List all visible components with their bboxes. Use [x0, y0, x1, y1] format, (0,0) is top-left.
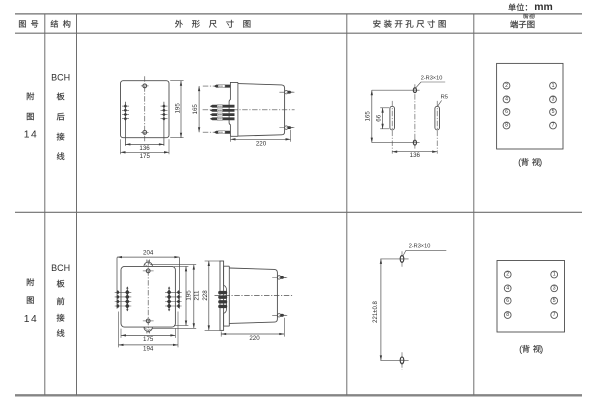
svg-text:165: 165 [192, 104, 199, 115]
svg-text:R5: R5 [441, 95, 448, 101]
svg-text:7: 7 [552, 123, 555, 129]
svg-text:(: ( [519, 344, 522, 354]
svg-text:4: 4 [505, 97, 508, 103]
svg-text:221±0.8: 221±0.8 [373, 301, 379, 323]
svg-text:194: 194 [143, 345, 154, 352]
svg-text:1: 1 [552, 83, 555, 89]
svg-text:2: 2 [505, 83, 508, 89]
svg-text:220: 220 [256, 140, 267, 147]
svg-text:2-R3×10: 2-R3×10 [421, 76, 443, 82]
svg-text:195: 195 [175, 103, 182, 114]
svg-text:BCH: BCH [51, 263, 70, 273]
svg-text:mm: mm [534, 2, 552, 13]
svg-text:175: 175 [143, 336, 154, 343]
svg-text:165: 165 [365, 111, 372, 122]
svg-text:8: 8 [506, 312, 509, 318]
svg-text:220: 220 [249, 335, 260, 342]
svg-text:BCH: BCH [51, 72, 70, 82]
svg-text:228: 228 [202, 290, 209, 301]
svg-text:6: 6 [506, 298, 509, 304]
svg-text:66: 66 [375, 114, 382, 121]
svg-text:): ) [540, 344, 543, 354]
svg-text:5: 5 [553, 298, 556, 304]
svg-text:175: 175 [140, 153, 151, 160]
svg-text:3: 3 [552, 97, 555, 103]
svg-text:195: 195 [186, 290, 193, 301]
svg-text:8: 8 [505, 123, 508, 129]
svg-text:6: 6 [505, 109, 508, 115]
svg-text:2: 2 [506, 272, 509, 278]
svg-text:4: 4 [506, 286, 509, 292]
svg-text:(: ( [518, 157, 521, 167]
svg-text:14: 14 [24, 129, 37, 140]
svg-text:136: 136 [139, 145, 150, 152]
svg-text:136: 136 [410, 152, 421, 159]
svg-text:211: 211 [193, 290, 200, 300]
svg-text:): ) [533, 14, 535, 20]
svg-text:204: 204 [143, 250, 154, 257]
svg-text:5: 5 [552, 109, 555, 115]
svg-text:1: 1 [553, 272, 556, 278]
svg-text:2-R3×10: 2-R3×10 [409, 243, 431, 249]
svg-text:14: 14 [24, 314, 37, 325]
svg-text:3: 3 [553, 286, 556, 292]
svg-text:): ) [539, 157, 542, 167]
svg-text:7: 7 [553, 312, 556, 318]
